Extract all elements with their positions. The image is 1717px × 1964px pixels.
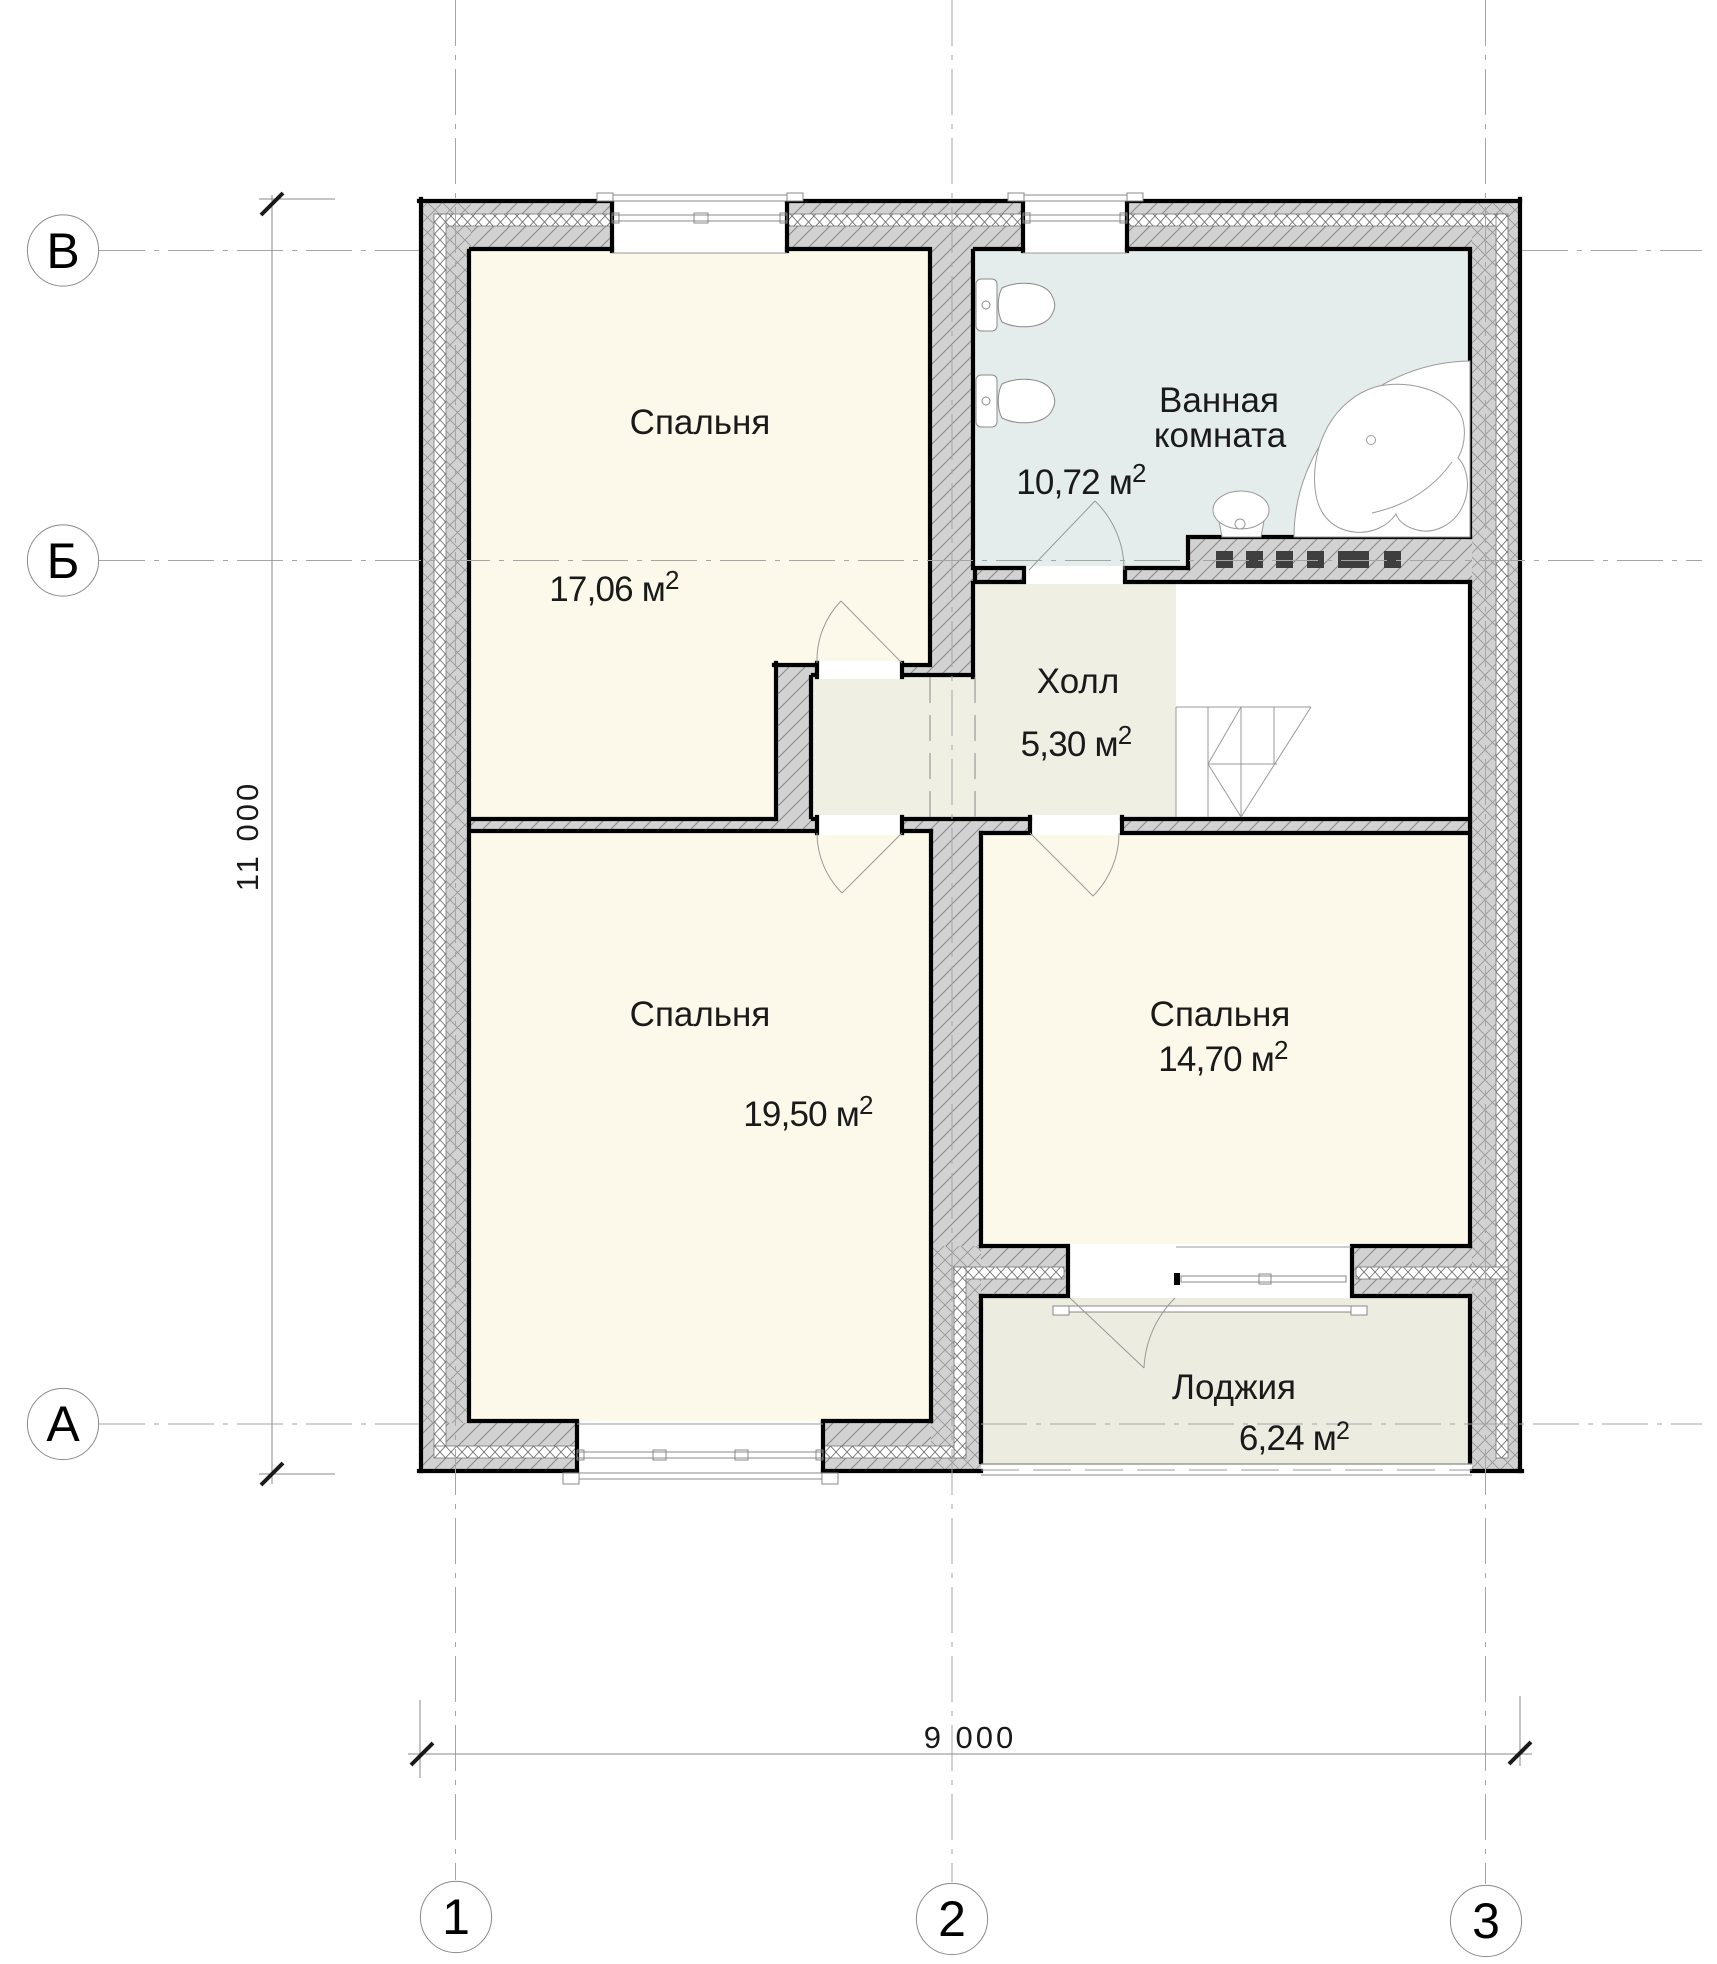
svg-text:9 000: 9 000 <box>924 1720 1017 1755</box>
svg-text:2: 2 <box>938 1891 966 1947</box>
svg-text:14,70 м2: 14,70 м2 <box>1158 1035 1288 1079</box>
svg-text:6,24 м2: 6,24 м2 <box>1239 1417 1349 1458</box>
svg-text:А: А <box>46 1396 80 1452</box>
svg-text:5,30 м2: 5,30 м2 <box>1021 720 1132 764</box>
svg-text:комната: комната <box>1154 416 1287 455</box>
svg-text:Лоджия: Лоджия <box>1172 1368 1296 1407</box>
svg-text:11 000: 11 000 <box>230 781 265 892</box>
svg-text:Ванная: Ванная <box>1159 381 1279 420</box>
svg-text:Спальня: Спальня <box>630 403 771 442</box>
svg-text:Б: Б <box>47 533 80 589</box>
svg-text:Спальня: Спальня <box>630 995 771 1034</box>
svg-text:17,06 м2: 17,06 м2 <box>549 565 679 609</box>
svg-text:Спальня: Спальня <box>1150 995 1291 1034</box>
svg-text:19,50 м2: 19,50 м2 <box>743 1090 873 1134</box>
svg-text:3: 3 <box>1472 1893 1500 1949</box>
svg-text:10,72 м2: 10,72 м2 <box>1016 458 1146 502</box>
svg-text:В: В <box>46 223 79 279</box>
svg-text:Холл: Холл <box>1037 662 1120 701</box>
svg-text:1: 1 <box>442 1889 470 1945</box>
